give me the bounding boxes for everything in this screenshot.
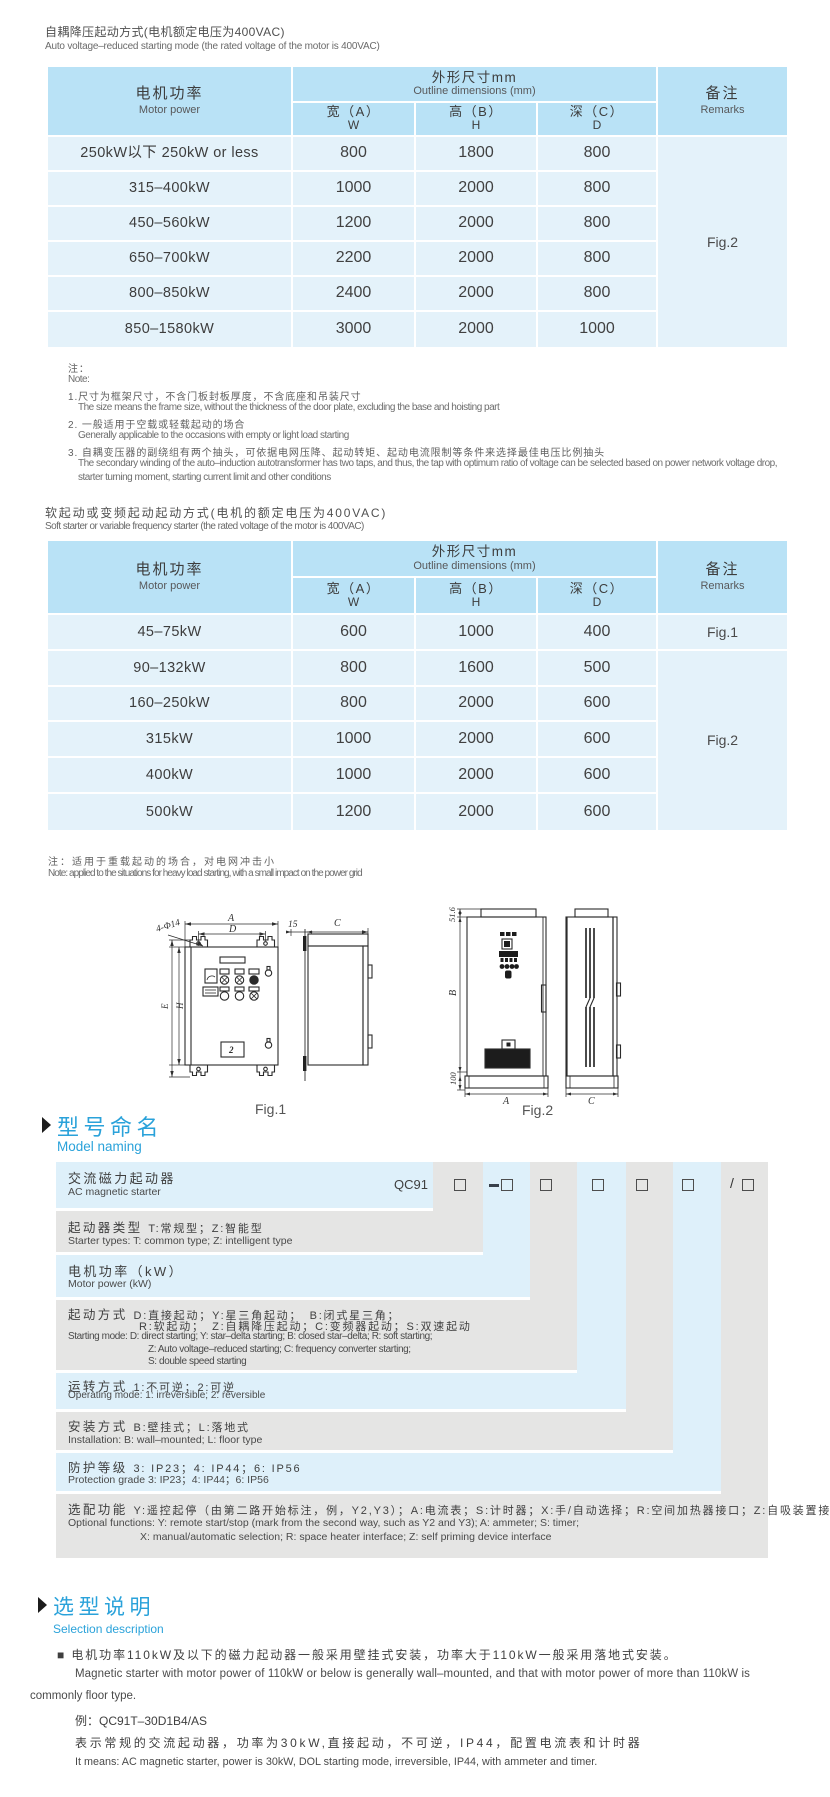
svg-text:C: C <box>588 1096 595 1107</box>
svg-text:2: 2 <box>228 1045 234 1055</box>
svg-text:A: A <box>502 1096 510 1107</box>
svg-text:D: D <box>228 924 237 935</box>
svg-text:4-Φ14: 4-Φ14 <box>155 918 182 935</box>
svg-text:C: C <box>334 918 341 929</box>
svg-text:100: 100 <box>448 1072 458 1086</box>
svg-text:B: B <box>448 990 459 996</box>
svg-text:E: E <box>160 1003 170 1010</box>
svg-text:A: A <box>227 913 235 924</box>
svg-text:H: H <box>175 1002 185 1010</box>
svg-text:51.6: 51.6 <box>447 906 457 922</box>
svg-text:15: 15 <box>288 920 298 930</box>
